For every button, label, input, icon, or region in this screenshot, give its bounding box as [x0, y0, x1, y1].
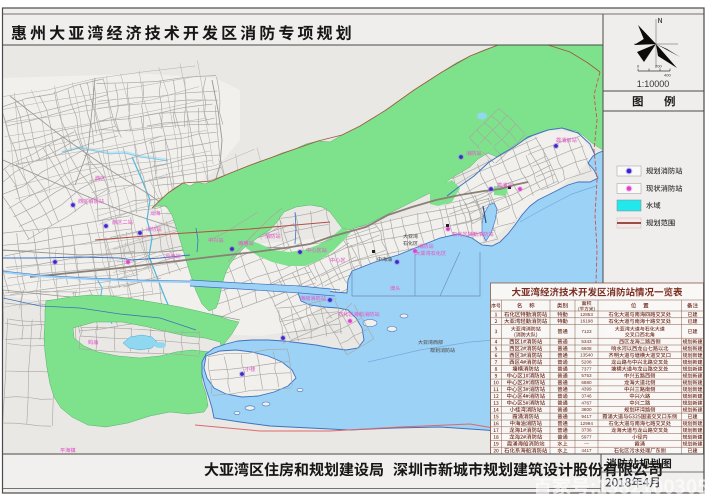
svg-text:3746: 3746	[581, 394, 592, 399]
svg-text:5753: 5753	[581, 373, 592, 378]
svg-text:400: 400	[664, 73, 671, 78]
svg-text:4399: 4399	[581, 387, 592, 392]
svg-text:16198: 16198	[580, 319, 593, 324]
svg-text:—: —	[584, 441, 589, 446]
svg-text:7123: 7123	[581, 329, 592, 334]
svg-text:200: 200	[655, 64, 662, 69]
svg-text:6608: 6608	[581, 346, 592, 351]
svg-text:7377: 7377	[581, 366, 592, 371]
svg-text:12853: 12853	[580, 312, 593, 317]
svg-text:4417: 4417	[581, 448, 592, 453]
svg-text:3800: 3800	[581, 407, 592, 412]
svg-text:12994: 12994	[580, 421, 593, 426]
svg-text:1:10000: 1:10000	[637, 79, 670, 89]
svg-text:4767: 4767	[581, 400, 592, 405]
svg-text:5208: 5208	[581, 360, 592, 365]
svg-text:9417: 9417	[581, 414, 592, 419]
svg-text:13540: 13540	[580, 353, 593, 358]
svg-text:6880: 6880	[581, 380, 592, 385]
svg-text:3736: 3736	[581, 428, 592, 433]
svg-text:5343: 5343	[581, 339, 592, 344]
svg-text:5977: 5977	[581, 434, 592, 439]
